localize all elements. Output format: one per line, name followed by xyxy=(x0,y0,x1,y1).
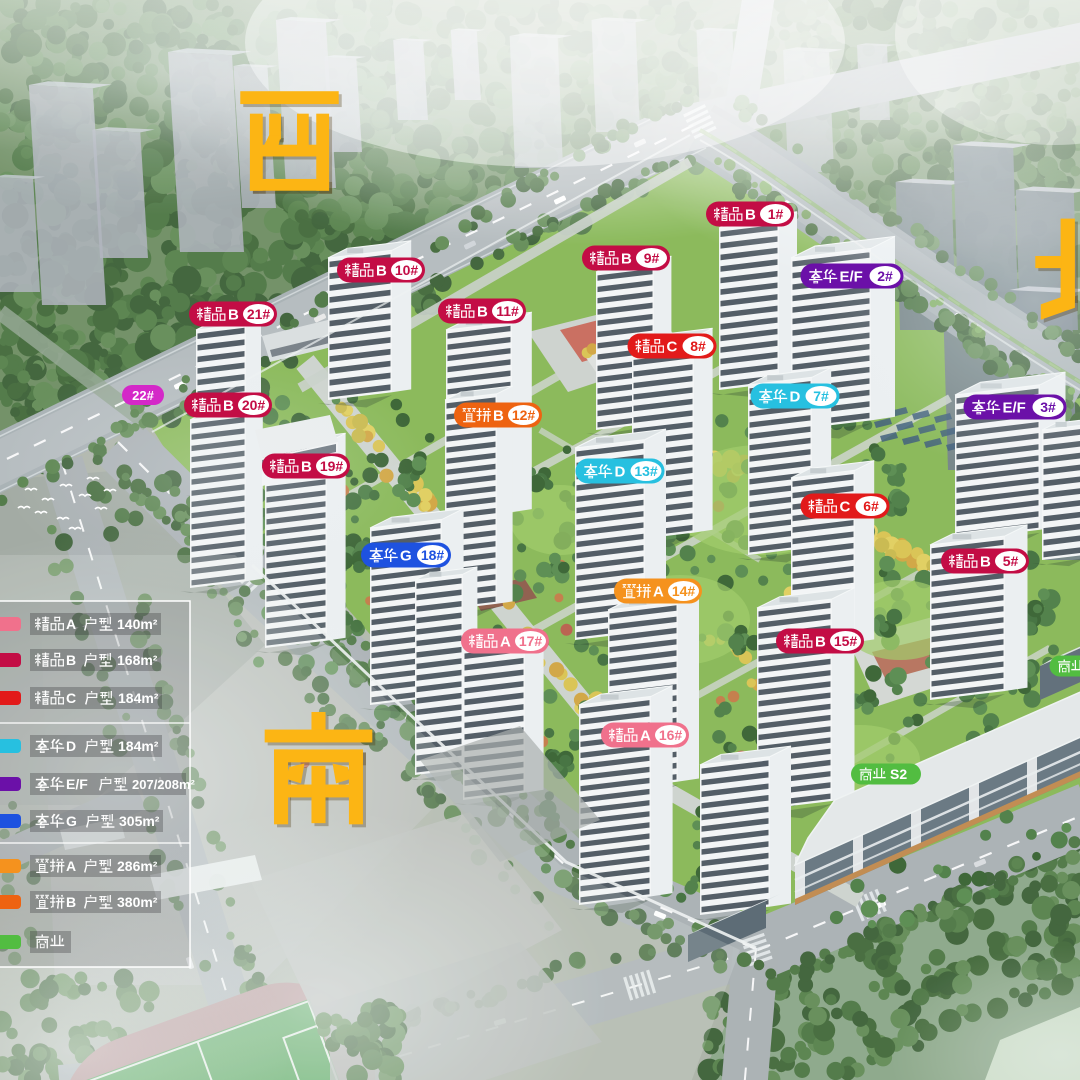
svg-text:13#: 13# xyxy=(634,463,658,479)
svg-text:22#: 22# xyxy=(132,388,154,403)
svg-text:G: G xyxy=(66,813,77,829)
svg-text:B: B xyxy=(745,207,756,224)
svg-text:A: A xyxy=(66,616,76,632)
svg-text:9#: 9# xyxy=(644,250,660,266)
svg-text:207/208m²: 207/208m² xyxy=(132,777,196,792)
svg-text:19#: 19# xyxy=(320,458,344,474)
svg-text:A: A xyxy=(500,634,511,651)
svg-text:3#: 3# xyxy=(1040,399,1056,415)
svg-text:14#: 14# xyxy=(672,583,696,599)
svg-text:8#: 8# xyxy=(690,338,706,354)
svg-text:168m²: 168m² xyxy=(117,652,158,668)
svg-text:A: A xyxy=(653,584,664,601)
svg-text:A: A xyxy=(640,728,651,745)
svg-text:305m²: 305m² xyxy=(119,813,160,829)
svg-text:16#: 16# xyxy=(659,727,683,743)
svg-text:B: B xyxy=(66,652,76,668)
svg-text:18#: 18# xyxy=(421,547,445,563)
svg-text:G: G xyxy=(400,548,412,565)
svg-text:C: C xyxy=(66,690,76,706)
svg-text:7#: 7# xyxy=(813,388,829,404)
svg-text:17#: 17# xyxy=(519,633,543,649)
svg-text:D: D xyxy=(66,738,76,754)
svg-text:C: C xyxy=(840,499,851,516)
svg-text:286m²: 286m² xyxy=(117,858,158,874)
svg-text:11#: 11# xyxy=(496,303,519,319)
svg-text:B: B xyxy=(376,263,387,280)
svg-text:184m²: 184m² xyxy=(118,738,159,754)
svg-text:B: B xyxy=(493,408,504,425)
svg-text:B: B xyxy=(228,307,239,324)
svg-text:D: D xyxy=(790,389,801,406)
svg-text:E/F: E/F xyxy=(840,269,863,286)
svg-text:12#: 12# xyxy=(512,407,536,423)
svg-text:21#: 21# xyxy=(247,306,271,322)
svg-text:184m²: 184m² xyxy=(118,690,159,706)
svg-text:A: A xyxy=(66,858,76,874)
svg-text:B: B xyxy=(980,554,991,571)
svg-text:E/F: E/F xyxy=(1003,400,1026,417)
svg-text:S2: S2 xyxy=(890,766,907,782)
svg-text:5#: 5# xyxy=(1003,553,1019,569)
svg-text:B: B xyxy=(66,894,76,910)
svg-text:140m²: 140m² xyxy=(117,616,158,632)
svg-text:C: C xyxy=(667,339,678,356)
svg-text:20#: 20# xyxy=(242,397,266,413)
svg-text:15#: 15# xyxy=(834,633,858,649)
svg-text:10#: 10# xyxy=(395,262,419,278)
svg-text:6#: 6# xyxy=(863,498,879,514)
svg-text:380m²: 380m² xyxy=(117,894,158,910)
svg-text:B: B xyxy=(301,459,312,476)
svg-text:B: B xyxy=(621,251,632,268)
svg-text:B: B xyxy=(815,634,826,651)
svg-text:2#: 2# xyxy=(877,268,893,284)
svg-text:B: B xyxy=(223,398,234,415)
svg-text:1#: 1# xyxy=(768,206,784,222)
svg-text:D: D xyxy=(615,464,626,481)
svg-text:B: B xyxy=(477,304,488,321)
svg-text:E/F: E/F xyxy=(66,776,88,792)
